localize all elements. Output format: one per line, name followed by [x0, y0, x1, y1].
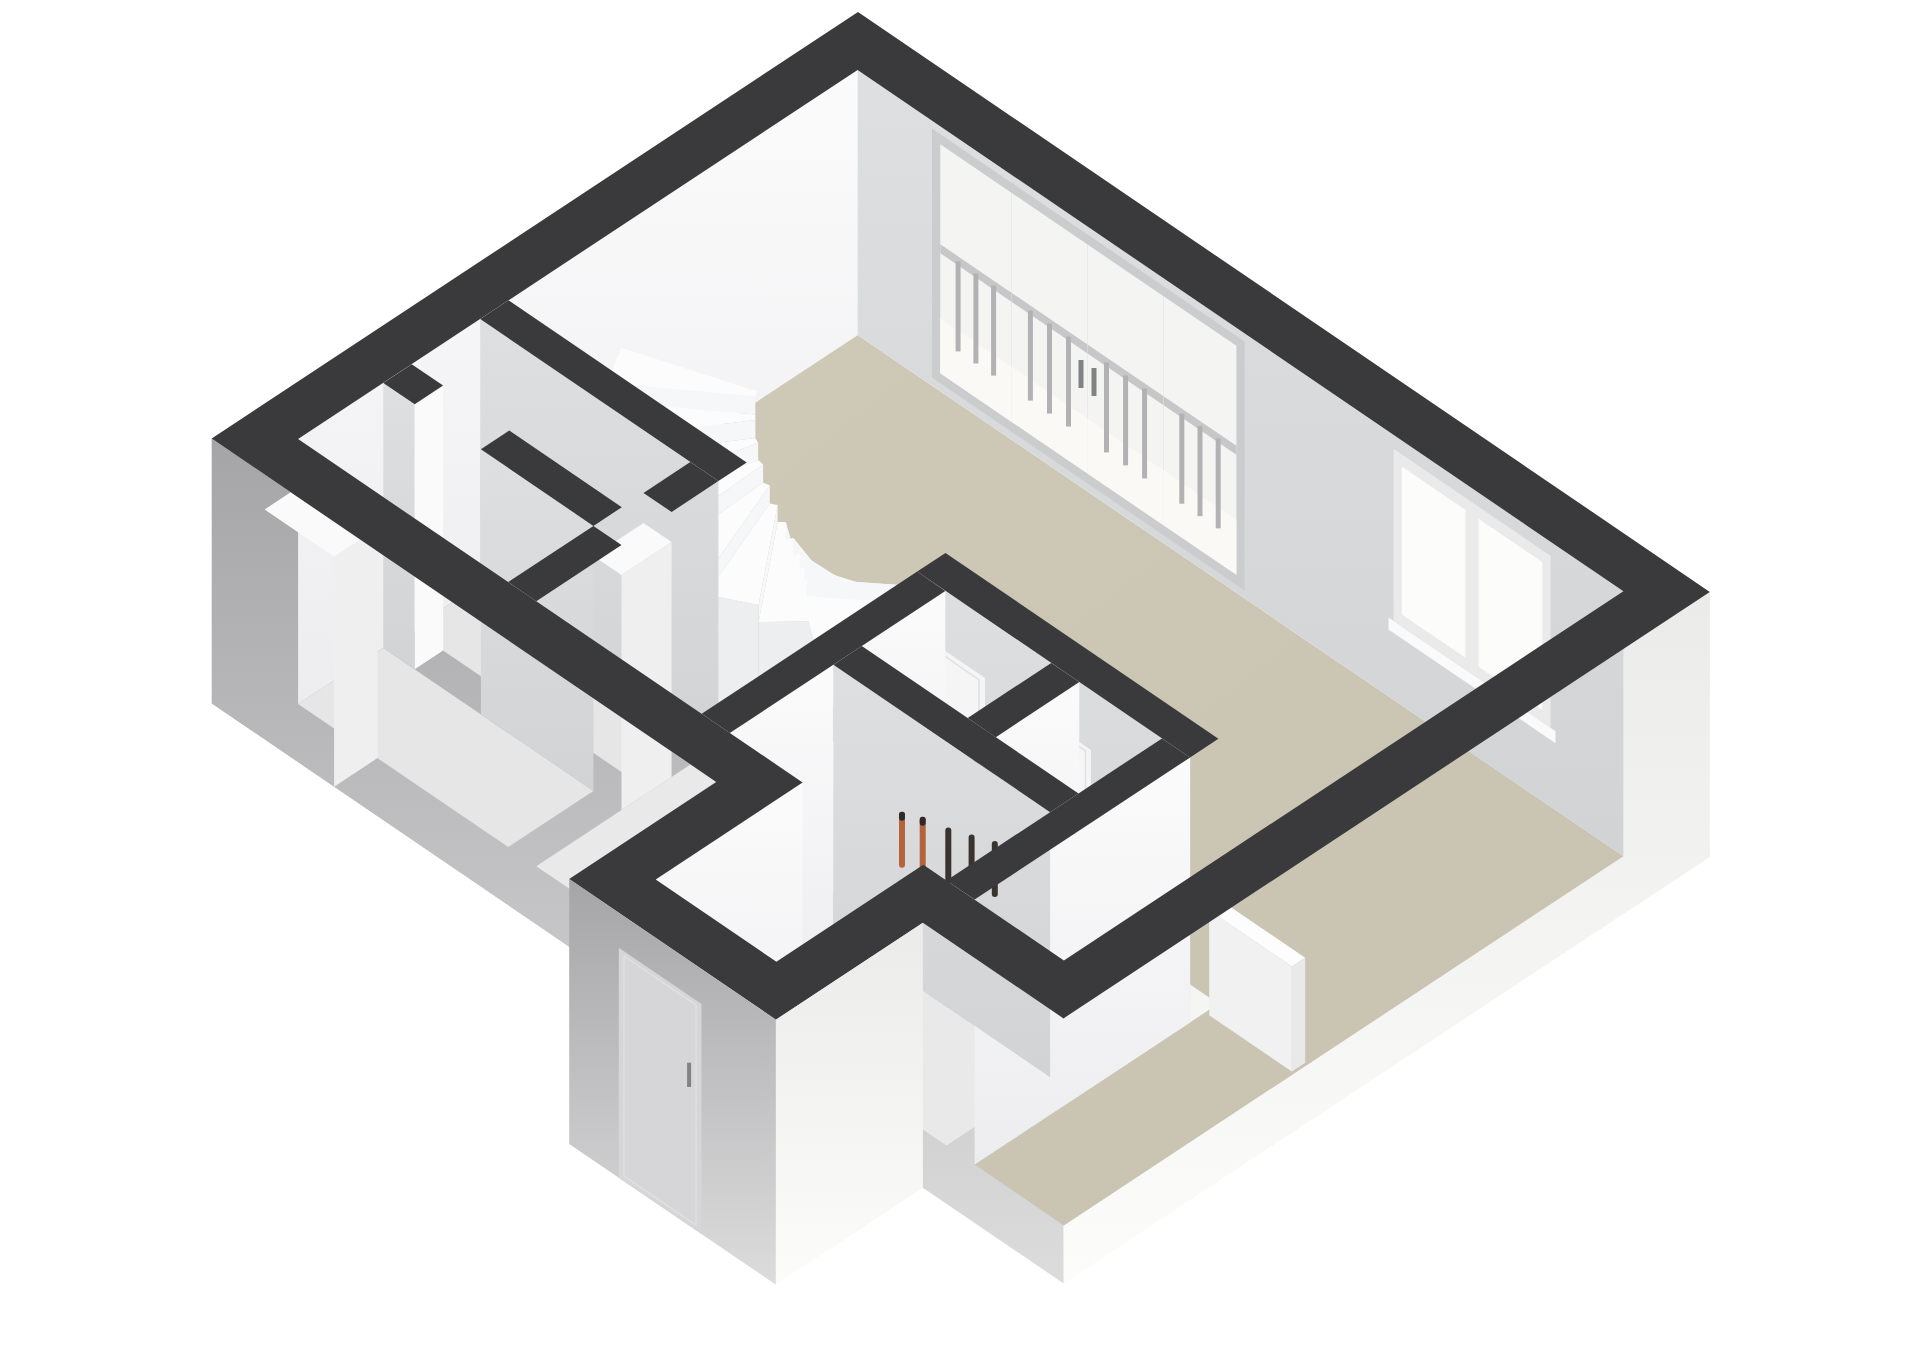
- radiator-end: [1292, 958, 1305, 1072]
- pipe-cap: [899, 812, 905, 821]
- closet-window-face: [334, 528, 377, 787]
- floorplan-3d-render: [0, 0, 1920, 1358]
- pipe-dark: [945, 828, 951, 884]
- pipe-cap: [920, 817, 926, 826]
